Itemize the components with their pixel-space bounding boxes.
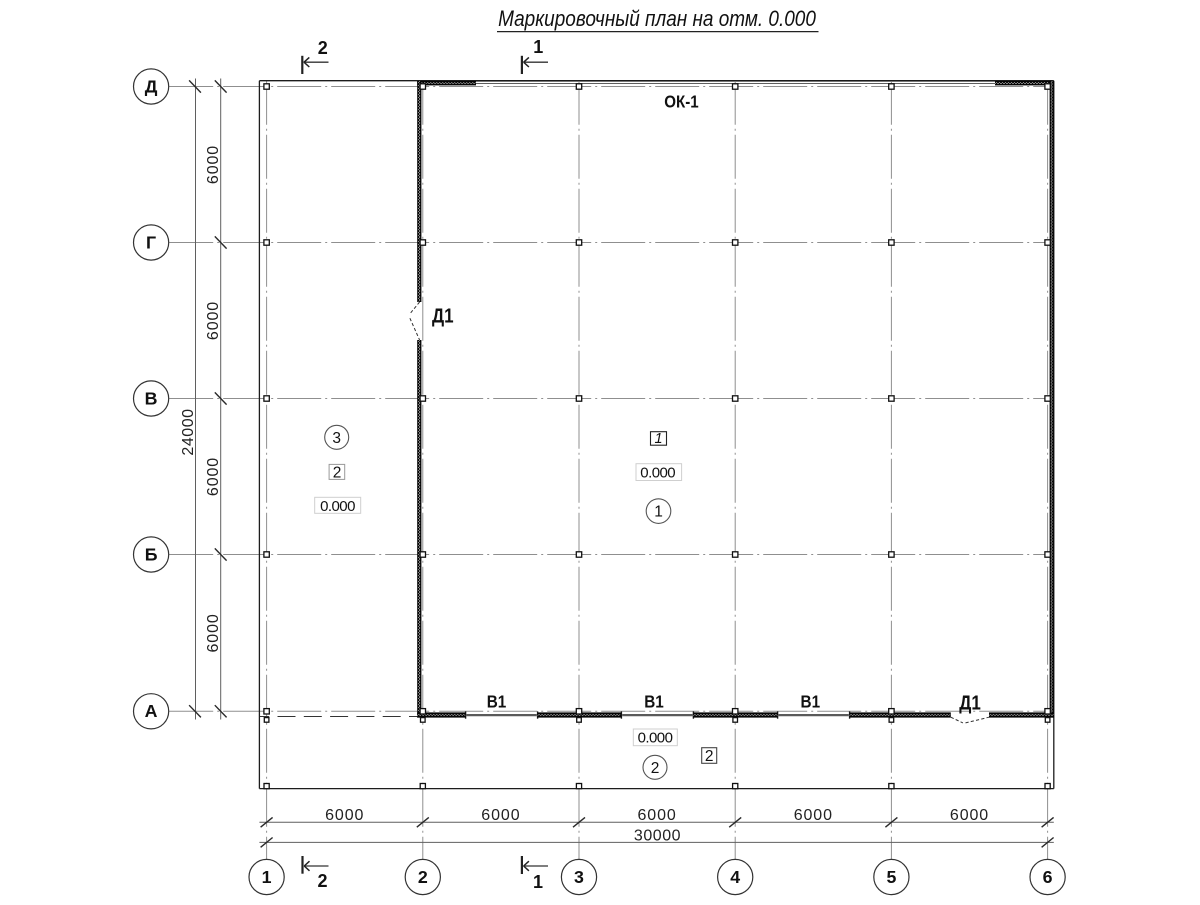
svg-text:1: 1 <box>654 504 663 521</box>
svg-text:6000: 6000 <box>205 145 222 184</box>
svg-text:4: 4 <box>730 867 740 887</box>
svg-text:2: 2 <box>705 748 714 765</box>
svg-text:0.000: 0.000 <box>320 498 355 515</box>
svg-text:Г: Г <box>146 232 156 252</box>
svg-text:6000: 6000 <box>325 807 364 824</box>
svg-text:1: 1 <box>654 431 662 447</box>
svg-text:6000: 6000 <box>205 457 222 496</box>
svg-text:2: 2 <box>418 867 428 887</box>
svg-text:1: 1 <box>262 867 272 887</box>
svg-text:3: 3 <box>574 867 584 887</box>
svg-text:2: 2 <box>317 871 327 891</box>
svg-text:6000: 6000 <box>637 807 676 824</box>
svg-text:2: 2 <box>333 464 342 481</box>
svg-text:30000: 30000 <box>634 828 681 845</box>
svg-text:А: А <box>145 701 158 721</box>
svg-text:0.000: 0.000 <box>640 465 675 482</box>
svg-text:Маркировочный план на отм. 0.0: Маркировочный план на отм. 0.000 <box>498 7 816 32</box>
svg-text:1: 1 <box>533 37 543 57</box>
svg-text:5: 5 <box>886 867 896 887</box>
svg-text:2: 2 <box>318 38 328 58</box>
svg-text:3: 3 <box>332 430 341 447</box>
svg-text:24000: 24000 <box>180 408 197 455</box>
svg-text:1: 1 <box>533 872 543 892</box>
svg-text:6000: 6000 <box>950 807 989 824</box>
svg-text:0.000: 0.000 <box>638 730 673 747</box>
svg-text:ОК-1: ОК-1 <box>664 91 698 112</box>
svg-text:6000: 6000 <box>794 807 833 824</box>
svg-text:6000: 6000 <box>205 301 222 340</box>
svg-text:6000: 6000 <box>205 613 222 652</box>
svg-text:В: В <box>145 388 158 408</box>
svg-text:Б: Б <box>145 544 158 564</box>
svg-text:6: 6 <box>1043 867 1053 887</box>
svg-text:В1: В1 <box>801 691 821 711</box>
svg-text:Д1: Д1 <box>959 691 981 714</box>
svg-text:2: 2 <box>651 760 660 777</box>
svg-text:В1: В1 <box>644 691 664 711</box>
svg-text:6000: 6000 <box>481 807 520 824</box>
svg-text:Д1: Д1 <box>432 304 454 327</box>
svg-text:Д: Д <box>145 76 158 96</box>
svg-text:В1: В1 <box>487 691 507 711</box>
